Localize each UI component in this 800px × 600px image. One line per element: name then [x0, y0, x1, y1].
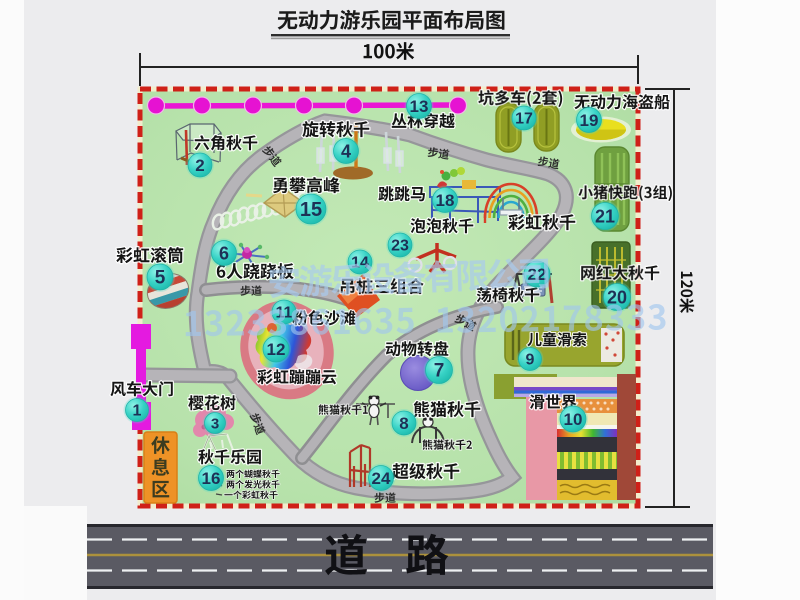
svg-text:13: 13 — [410, 97, 429, 116]
svg-text:5: 5 — [155, 268, 166, 289]
svg-text:19: 19 — [580, 111, 599, 130]
svg-text:23: 23 — [391, 238, 409, 255]
svg-text:3: 3 — [211, 415, 219, 432]
svg-text:8: 8 — [399, 414, 408, 433]
svg-text:24: 24 — [372, 469, 391, 488]
svg-text:20: 20 — [607, 287, 627, 307]
svg-text:7: 7 — [434, 361, 445, 382]
svg-text:10: 10 — [564, 410, 583, 429]
svg-text:9: 9 — [526, 352, 535, 369]
svg-text:16: 16 — [202, 469, 221, 488]
svg-text:15: 15 — [300, 199, 322, 221]
svg-text:12: 12 — [267, 340, 286, 359]
svg-text:4: 4 — [341, 141, 351, 161]
svg-text:17: 17 — [515, 111, 533, 128]
svg-text:21: 21 — [595, 206, 615, 226]
svg-text:1: 1 — [133, 403, 142, 420]
svg-text:14: 14 — [351, 255, 369, 272]
svg-text:2: 2 — [195, 156, 204, 175]
svg-text:6: 6 — [219, 243, 229, 263]
svg-text:18: 18 — [436, 191, 455, 210]
